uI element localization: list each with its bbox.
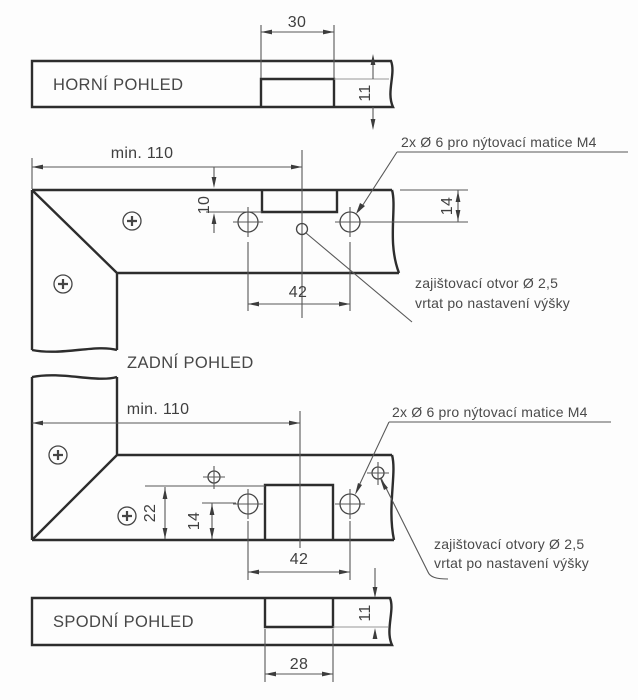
rear-lock-note-line2: vrtat po nastavení výšky <box>415 295 570 311</box>
screw-icon <box>54 275 72 293</box>
technical-drawing-page: HORNÍ POHLED 30 11 <box>0 0 638 700</box>
front-lock-note-line1: zajištovací otvory Ø 2,5 <box>434 536 584 552</box>
dim-front-min-width: min. 110 <box>32 401 300 425</box>
rear-view: min. 110 10 14 42 2x Ø 6 pro nýtovací ma… <box>32 134 628 372</box>
rear-rivet-note-text: 2x Ø 6 pro nýtovací matice M4 <box>401 134 597 150</box>
screw-icon <box>123 212 141 230</box>
rear-view-label: ZADNÍ POHLED <box>127 353 254 372</box>
dim-front-hole-offset: 14 <box>186 503 236 539</box>
rear-view-notch <box>262 190 337 212</box>
screw-icon <box>49 446 67 464</box>
dim-top-depth-value: 11 <box>357 84 374 101</box>
top-view-label: HORNÍ POHLED <box>53 75 183 94</box>
front-rivet-note-text: 2x Ø 6 pro nýtovací matice M4 <box>392 404 588 420</box>
dim-bottom-width-value: 28 <box>290 656 308 673</box>
rivet-hole-icon <box>335 207 365 237</box>
dim-front-min-width-value: min. 110 <box>127 401 190 418</box>
dim-rear-hole-offset: 14 <box>363 190 468 222</box>
front-locking-annotation: zajištovací otvory Ø 2,5 vrtat po nastav… <box>380 478 589 579</box>
front-view-notch <box>265 485 333 540</box>
dim-rear-hole-pitch-value: 42 <box>289 284 307 301</box>
dim-bottom-depth-value: 11 <box>357 604 374 621</box>
dim-rear-min-width: min. 110 <box>32 145 302 189</box>
dim-front-hole-pitch: 42 <box>248 521 350 580</box>
front-lock-note-line2: vrtat po nastavení výšky <box>434 555 589 571</box>
dim-front-notch-depth-value: 22 <box>142 504 159 522</box>
front-view-outline <box>32 375 394 540</box>
rear-lock-note-line1: zajištovací otvor Ø 2,5 <box>415 275 558 291</box>
dim-front-hole-offset-value: 14 <box>186 512 203 530</box>
dim-front-hole-pitch-value: 42 <box>290 551 308 568</box>
dim-rear-notch-depth-value: 10 <box>196 196 213 214</box>
dim-rear-min-width-value: min. 110 <box>111 145 174 162</box>
front-view: min. 110 22 14 42 2x Ø 6 pro nýtovací ma… <box>32 375 611 580</box>
dim-rear-notch-depth: 10 <box>196 167 216 233</box>
rear-rivet-annotation: 2x Ø 6 pro nýtovací matice M4 <box>356 134 628 214</box>
technical-drawing: HORNÍ POHLED 30 11 <box>0 0 638 700</box>
top-view: HORNÍ POHLED 30 11 <box>32 14 393 130</box>
rear-locking-annotation: zajištovací otvor Ø 2,5 vrtat po nastave… <box>306 233 570 322</box>
screw-icon <box>118 507 136 525</box>
locking-hole-icon <box>367 462 389 485</box>
dim-rear-hole-pitch: 42 <box>248 242 350 311</box>
dim-front-notch-depth: 22 <box>142 487 167 539</box>
rivet-hole-icon <box>335 489 365 519</box>
dim-rear-hole-offset-value: 14 <box>439 197 456 215</box>
bottom-view-label: SPODNÍ POHLED <box>53 612 194 631</box>
bottom-view: SPODNÍ POHLED 28 11 <box>32 568 392 682</box>
dim-top-width-value: 30 <box>288 14 306 31</box>
rivet-hole-icon <box>233 489 263 519</box>
